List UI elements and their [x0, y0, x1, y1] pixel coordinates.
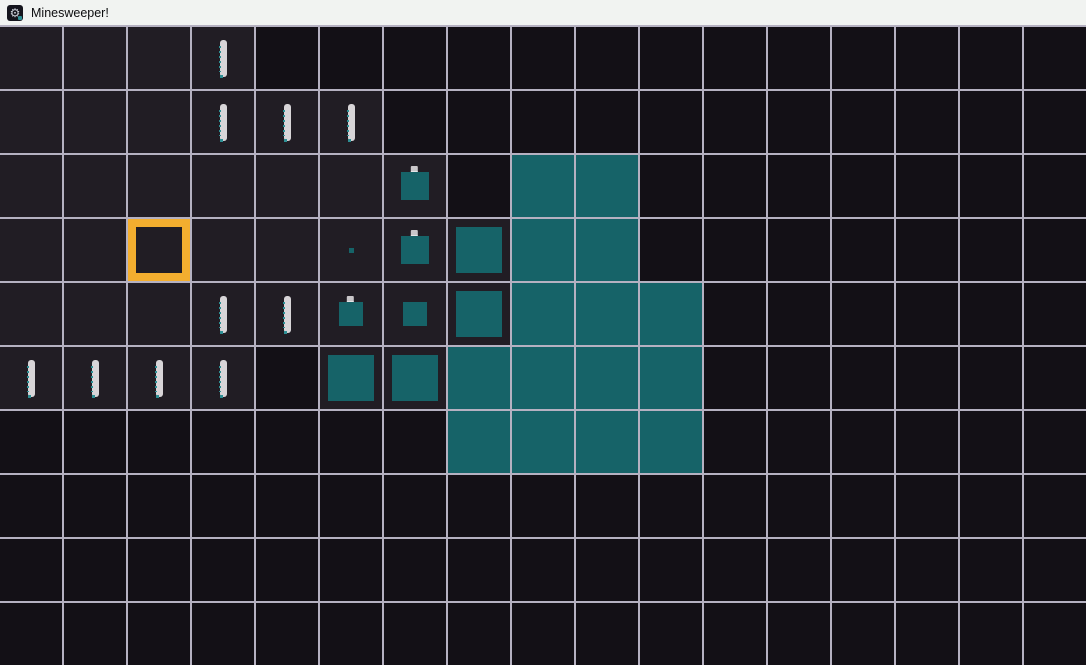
cell-r1-c6-unrevealed[interactable] [384, 91, 446, 153]
cell-r7-c7-unrevealed[interactable] [448, 475, 510, 537]
cell-r0-c8-unrevealed[interactable] [512, 27, 574, 89]
cell-r1-c15-unrevealed[interactable] [960, 91, 1022, 153]
cell-r0-c13-unrevealed[interactable] [832, 27, 894, 89]
cell-r9-c15-unrevealed[interactable] [960, 603, 1022, 665]
teal-reveal-dot [349, 248, 354, 253]
cell-r1-c10-unrevealed[interactable] [640, 91, 702, 153]
cell-r2-c14-unrevealed[interactable] [896, 155, 958, 217]
cell-r8-c10-unrevealed[interactable] [640, 539, 702, 601]
cell-r3-c10-unrevealed[interactable] [640, 219, 702, 281]
cell-r0-c6-unrevealed[interactable] [384, 27, 446, 89]
cell-r8-c4-unrevealed[interactable] [256, 539, 318, 601]
one-glyph [220, 360, 227, 397]
cell-r1-c9-unrevealed[interactable] [576, 91, 638, 153]
cell-r9-c13-unrevealed[interactable] [832, 603, 894, 665]
cell-r4-c13-unrevealed[interactable] [832, 283, 894, 345]
cell-r4-c9-teal-full[interactable] [576, 283, 638, 345]
cell-r5-c8-teal-full[interactable] [512, 347, 574, 409]
cell-r6-c2-unrevealed[interactable] [128, 411, 190, 473]
cell-r0-c10-unrevealed[interactable] [640, 27, 702, 89]
cell-r6-c13-unrevealed[interactable] [832, 411, 894, 473]
cell-r6-c6-unrevealed[interactable] [384, 411, 446, 473]
cell-r2-c16-unrevealed[interactable] [1024, 155, 1086, 217]
cell-r9-c4-unrevealed[interactable] [256, 603, 318, 665]
cell-r6-c7-teal-full[interactable] [448, 411, 510, 473]
cell-r7-c8-unrevealed[interactable] [512, 475, 574, 537]
cell-r8-c11-unrevealed[interactable] [704, 539, 766, 601]
cell-r1-c13-unrevealed[interactable] [832, 91, 894, 153]
cell-r7-c11-unrevealed[interactable] [704, 475, 766, 537]
cell-r3-c6-reveal-square-28-nub[interactable] [384, 219, 446, 281]
cell-r3-c1-revealed-empty[interactable] [64, 219, 126, 281]
cell-r3-c14-unrevealed[interactable] [896, 219, 958, 281]
cell-r3-c16-unrevealed[interactable] [1024, 219, 1086, 281]
one-glyph [220, 296, 227, 333]
one-glyph [220, 40, 227, 77]
cell-r6-c14-unrevealed[interactable] [896, 411, 958, 473]
cell-r7-c3-unrevealed[interactable] [192, 475, 254, 537]
cell-r7-c0-unrevealed[interactable] [0, 475, 62, 537]
cell-r2-c13-unrevealed[interactable] [832, 155, 894, 217]
cell-r9-c5-unrevealed[interactable] [320, 603, 382, 665]
cell-r8-c9-unrevealed[interactable] [576, 539, 638, 601]
teal-spark-icon [18, 16, 22, 20]
teal-reveal-square [403, 302, 427, 326]
cell-r4-c15-unrevealed[interactable] [960, 283, 1022, 345]
cell-r4-c3-revealed-one[interactable] [192, 283, 254, 345]
cell-r7-c10-unrevealed[interactable] [640, 475, 702, 537]
cell-r0-c3-revealed-one[interactable] [192, 27, 254, 89]
title-bar: ⚙ Minesweeper! [0, 0, 1086, 25]
cell-r7-c2-unrevealed[interactable] [128, 475, 190, 537]
cell-r5-c9-teal-full[interactable] [576, 347, 638, 409]
cell-r3-c0-revealed-empty[interactable] [0, 219, 62, 281]
cell-r7-c14-unrevealed[interactable] [896, 475, 958, 537]
cell-r9-c9-unrevealed[interactable] [576, 603, 638, 665]
cell-r4-c12-unrevealed[interactable] [768, 283, 830, 345]
app-icon: ⚙ [7, 5, 23, 21]
cell-r8-c13-unrevealed[interactable] [832, 539, 894, 601]
cell-r4-c1-revealed-empty[interactable] [64, 283, 126, 345]
cell-r6-c5-unrevealed[interactable] [320, 411, 382, 473]
cell-r9-c16-unrevealed[interactable] [1024, 603, 1086, 665]
cell-r5-c6-reveal-square-46[interactable] [384, 347, 446, 409]
cell-r0-c4-unrevealed[interactable] [256, 27, 318, 89]
cell-r5-c10-teal-full[interactable] [640, 347, 702, 409]
cell-r4-c10-teal-full[interactable] [640, 283, 702, 345]
cell-r2-c7-unrevealed[interactable] [448, 155, 510, 217]
cell-r6-c8-teal-full[interactable] [512, 411, 574, 473]
cell-r2-c8-teal-full[interactable] [512, 155, 574, 217]
cell-r9-c14-unrevealed[interactable] [896, 603, 958, 665]
cell-r2-c15-unrevealed[interactable] [960, 155, 1022, 217]
teal-reveal-square-large [328, 355, 374, 401]
cell-r3-c15-unrevealed[interactable] [960, 219, 1022, 281]
cell-r1-c0-revealed-empty[interactable] [0, 91, 62, 153]
cell-r1-c12-unrevealed[interactable] [768, 91, 830, 153]
cell-r1-c4-revealed-one[interactable] [256, 91, 318, 153]
cell-r3-c13-unrevealed[interactable] [832, 219, 894, 281]
cell-r4-c8-teal-full[interactable] [512, 283, 574, 345]
cell-r9-c12-unrevealed[interactable] [768, 603, 830, 665]
cell-r4-c7-reveal-square-46[interactable] [448, 283, 510, 345]
cell-r5-c15-unrevealed[interactable] [960, 347, 1022, 409]
cell-r0-c1-revealed-empty[interactable] [64, 27, 126, 89]
cell-r2-c5-revealed-empty[interactable] [320, 155, 382, 217]
cell-r8-c16-unrevealed[interactable] [1024, 539, 1086, 601]
cell-r8-c1-unrevealed[interactable] [64, 539, 126, 601]
cell-r2-c3-revealed-empty[interactable] [192, 155, 254, 217]
one-glyph [348, 104, 355, 141]
cell-r7-c13-unrevealed[interactable] [832, 475, 894, 537]
cell-r9-c2-unrevealed[interactable] [128, 603, 190, 665]
cell-r3-c12-unrevealed[interactable] [768, 219, 830, 281]
cell-r8-c14-unrevealed[interactable] [896, 539, 958, 601]
cell-r6-c10-teal-full[interactable] [640, 411, 702, 473]
cell-r5-c14-unrevealed[interactable] [896, 347, 958, 409]
cell-r3-c11-unrevealed[interactable] [704, 219, 766, 281]
cell-r4-c16-unrevealed[interactable] [1024, 283, 1086, 345]
cell-r0-c2-revealed-empty[interactable] [128, 27, 190, 89]
cell-r5-c12-unrevealed[interactable] [768, 347, 830, 409]
cell-r6-c1-unrevealed[interactable] [64, 411, 126, 473]
cell-r5-c1-revealed-one[interactable] [64, 347, 126, 409]
cell-r7-c4-unrevealed[interactable] [256, 475, 318, 537]
cell-r6-c3-unrevealed[interactable] [192, 411, 254, 473]
cell-r2-c0-revealed-empty[interactable] [0, 155, 62, 217]
cell-r1-c3-revealed-one[interactable] [192, 91, 254, 153]
cell-r8-c2-unrevealed[interactable] [128, 539, 190, 601]
cell-r4-c6-reveal-square-24[interactable] [384, 283, 446, 345]
cell-r7-c16-unrevealed[interactable] [1024, 475, 1086, 537]
cell-r2-c6-reveal-square-28-nub[interactable] [384, 155, 446, 217]
cell-r2-c1-revealed-empty[interactable] [64, 155, 126, 217]
cell-r5-c7-teal-full[interactable] [448, 347, 510, 409]
teal-reveal-square-large [392, 355, 438, 401]
cell-r6-c12-unrevealed[interactable] [768, 411, 830, 473]
teal-reveal-square-nub [401, 236, 429, 264]
cell-r4-c14-unrevealed[interactable] [896, 283, 958, 345]
cell-r3-c8-teal-full[interactable] [512, 219, 574, 281]
cell-r6-c9-teal-full[interactable] [576, 411, 638, 473]
teal-reveal-square-nub [339, 302, 363, 326]
cell-r5-c2-revealed-one[interactable] [128, 347, 190, 409]
cell-r3-c2-cursor-cell[interactable] [128, 219, 190, 281]
cell-r3-c4-revealed-empty[interactable] [256, 219, 318, 281]
cell-r2-c12-unrevealed[interactable] [768, 155, 830, 217]
cell-r5-c0-revealed-one[interactable] [0, 347, 62, 409]
cell-r9-c0-unrevealed[interactable] [0, 603, 62, 665]
cell-r0-c14-unrevealed[interactable] [896, 27, 958, 89]
cell-r7-c15-unrevealed[interactable] [960, 475, 1022, 537]
cell-r8-c0-unrevealed[interactable] [0, 539, 62, 601]
cell-r0-c5-unrevealed[interactable] [320, 27, 382, 89]
cell-r4-c2-revealed-empty[interactable] [128, 283, 190, 345]
cell-r3-c5-reveal-dot[interactable] [320, 219, 382, 281]
cell-r4-c0-revealed-empty[interactable] [0, 283, 62, 345]
teal-reveal-square-nub [401, 172, 429, 200]
minefield-grid [0, 25, 1086, 665]
cell-r9-c1-unrevealed[interactable] [64, 603, 126, 665]
cell-r1-c16-unrevealed[interactable] [1024, 91, 1086, 153]
cell-r5-c13-unrevealed[interactable] [832, 347, 894, 409]
one-glyph [28, 360, 35, 397]
cell-r9-c10-unrevealed[interactable] [640, 603, 702, 665]
cell-r0-c7-unrevealed[interactable] [448, 27, 510, 89]
one-glyph [92, 360, 99, 397]
cell-r8-c8-unrevealed[interactable] [512, 539, 574, 601]
cell-r5-c3-revealed-one[interactable] [192, 347, 254, 409]
cell-r6-c15-unrevealed[interactable] [960, 411, 1022, 473]
cell-r1-c7-unrevealed[interactable] [448, 91, 510, 153]
cell-r0-c16-unrevealed[interactable] [1024, 27, 1086, 89]
cell-r5-c5-reveal-square-46[interactable] [320, 347, 382, 409]
cell-r5-c16-unrevealed[interactable] [1024, 347, 1086, 409]
cell-r2-c11-unrevealed[interactable] [704, 155, 766, 217]
cell-r3-c3-revealed-empty[interactable] [192, 219, 254, 281]
cell-r6-c16-unrevealed[interactable] [1024, 411, 1086, 473]
cell-r7-c1-unrevealed[interactable] [64, 475, 126, 537]
one-glyph [284, 104, 291, 141]
cell-r4-c4-revealed-one[interactable] [256, 283, 318, 345]
cell-r9-c3-unrevealed[interactable] [192, 603, 254, 665]
cell-r9-c8-unrevealed[interactable] [512, 603, 574, 665]
cell-r8-c6-unrevealed[interactable] [384, 539, 446, 601]
cell-r8-c12-unrevealed[interactable] [768, 539, 830, 601]
cell-r1-c5-revealed-one[interactable] [320, 91, 382, 153]
cell-r0-c0-revealed-empty[interactable] [0, 27, 62, 89]
cell-r9-c11-unrevealed[interactable] [704, 603, 766, 665]
cell-r2-c9-teal-full[interactable] [576, 155, 638, 217]
cell-r6-c0-unrevealed[interactable] [0, 411, 62, 473]
cell-r4-c11-unrevealed[interactable] [704, 283, 766, 345]
cell-r5-c4-unrevealed[interactable] [256, 347, 318, 409]
cell-r0-c9-unrevealed[interactable] [576, 27, 638, 89]
teal-reveal-square-large [456, 291, 502, 337]
cell-r8-c5-unrevealed[interactable] [320, 539, 382, 601]
one-glyph [220, 104, 227, 141]
cell-r7-c5-unrevealed[interactable] [320, 475, 382, 537]
cell-r1-c11-unrevealed[interactable] [704, 91, 766, 153]
cell-r1-c14-unrevealed[interactable] [896, 91, 958, 153]
cell-r1-c2-revealed-empty[interactable] [128, 91, 190, 153]
cell-r3-c9-teal-full[interactable] [576, 219, 638, 281]
cell-r0-c15-unrevealed[interactable] [960, 27, 1022, 89]
cell-r9-c7-unrevealed[interactable] [448, 603, 510, 665]
cell-r7-c9-unrevealed[interactable] [576, 475, 638, 537]
cell-r2-c4-revealed-empty[interactable] [256, 155, 318, 217]
cell-r0-c12-unrevealed[interactable] [768, 27, 830, 89]
cell-r8-c3-unrevealed[interactable] [192, 539, 254, 601]
cell-r2-c10-unrevealed[interactable] [640, 155, 702, 217]
cell-r5-c11-unrevealed[interactable] [704, 347, 766, 409]
cell-r1-c1-revealed-empty[interactable] [64, 91, 126, 153]
teal-reveal-square-large [456, 227, 502, 273]
one-glyph [284, 296, 291, 333]
cell-r3-c7-reveal-square-46[interactable] [448, 219, 510, 281]
cell-r2-c2-revealed-empty[interactable] [128, 155, 190, 217]
cell-r7-c12-unrevealed[interactable] [768, 475, 830, 537]
cell-r6-c11-unrevealed[interactable] [704, 411, 766, 473]
cell-r8-c7-unrevealed[interactable] [448, 539, 510, 601]
cell-r9-c6-unrevealed[interactable] [384, 603, 446, 665]
cell-r6-c4-unrevealed[interactable] [256, 411, 318, 473]
cell-r8-c15-unrevealed[interactable] [960, 539, 1022, 601]
one-glyph [156, 360, 163, 397]
window-title: Minesweeper! [31, 6, 109, 20]
cell-r7-c6-unrevealed[interactable] [384, 475, 446, 537]
cell-r4-c5-reveal-square-24-nub[interactable] [320, 283, 382, 345]
cell-r0-c11-unrevealed[interactable] [704, 27, 766, 89]
cell-r1-c8-unrevealed[interactable] [512, 91, 574, 153]
